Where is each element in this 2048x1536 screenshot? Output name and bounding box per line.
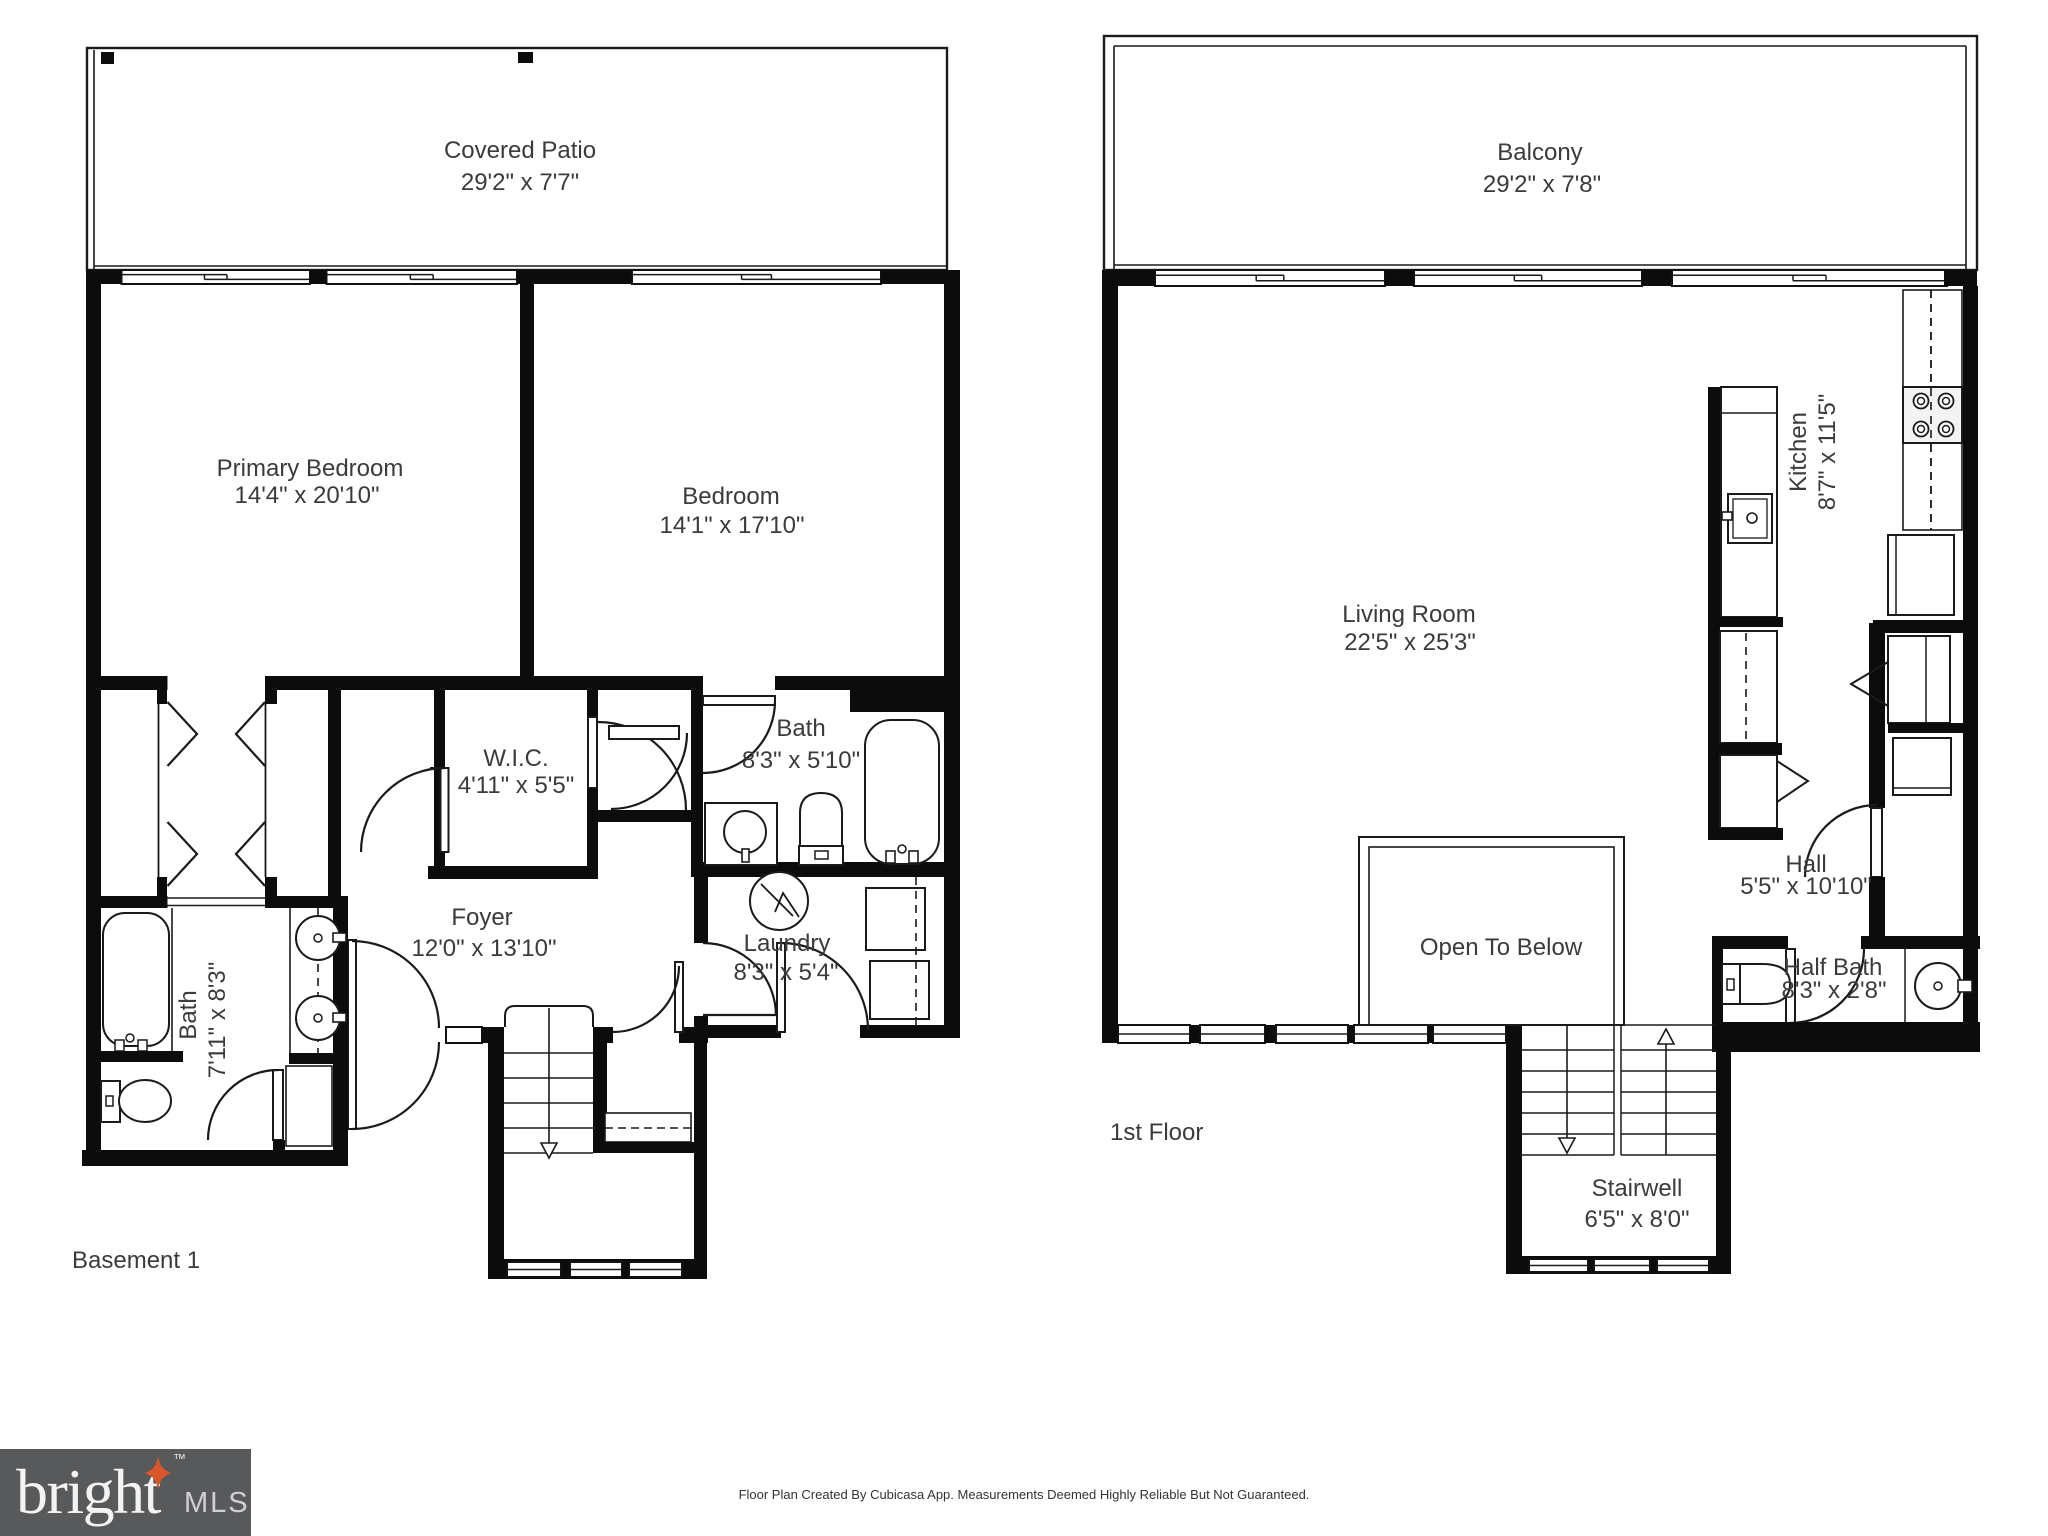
svg-text:7'11" x 8'3": 7'11" x 8'3" xyxy=(204,962,231,1079)
svg-text:™: ™ xyxy=(173,1451,186,1466)
svg-text:Bath: Bath xyxy=(175,990,202,1039)
svg-text:1st Floor: 1st Floor xyxy=(1110,1119,1203,1146)
svg-text:MLS: MLS xyxy=(184,1487,250,1519)
svg-text:12'0" x 13'10": 12'0" x 13'10" xyxy=(412,935,557,962)
svg-text:Open To Below: Open To Below xyxy=(1420,934,1583,961)
svg-text:Bedroom: Bedroom xyxy=(682,483,779,510)
svg-text:Balcony: Balcony xyxy=(1497,139,1582,166)
svg-text:14'1" x 17'10": 14'1" x 17'10" xyxy=(660,512,805,539)
svg-text:Covered Patio: Covered Patio xyxy=(444,137,596,164)
svg-text:Foyer: Foyer xyxy=(451,904,512,931)
svg-text:22'5" x 25'3": 22'5" x 25'3" xyxy=(1344,629,1476,656)
svg-text:6'5" x 8'0": 6'5" x 8'0" xyxy=(1585,1206,1690,1233)
svg-text:Stairwell: Stairwell xyxy=(1592,1175,1683,1202)
svg-text:Floor Plan Created By Cubicasa: Floor Plan Created By Cubicasa App. Meas… xyxy=(739,1487,1310,1502)
svg-text:Laundry: Laundry xyxy=(744,930,831,957)
svg-text:8'3" x 2'8": 8'3" x 2'8" xyxy=(1782,977,1887,1004)
svg-text:4'11" x 5'5": 4'11" x 5'5" xyxy=(458,772,575,799)
svg-text:29'2" x 7'7": 29'2" x 7'7" xyxy=(461,169,579,196)
svg-text:Basement 1: Basement 1 xyxy=(72,1247,200,1274)
svg-text:W.I.C.: W.I.C. xyxy=(483,745,548,772)
svg-text:14'4" x 20'10": 14'4" x 20'10" xyxy=(235,482,380,509)
svg-text:8'7" x 11'5": 8'7" x 11'5" xyxy=(1814,394,1841,511)
svg-text:Bath: Bath xyxy=(776,715,825,742)
svg-text:8'3" x 5'4": 8'3" x 5'4" xyxy=(734,959,839,986)
svg-text:29'2" x 7'8": 29'2" x 7'8" xyxy=(1483,171,1601,198)
svg-text:8'3" x 5'10": 8'3" x 5'10" xyxy=(742,747,860,774)
svg-text:bright: bright xyxy=(16,1456,162,1527)
svg-text:Living Room: Living Room xyxy=(1342,601,1475,628)
svg-text:Primary Bedroom: Primary Bedroom xyxy=(217,455,404,482)
svg-text:5'5" x 10'10": 5'5" x 10'10" xyxy=(1740,873,1872,900)
svg-text:Kitchen: Kitchen xyxy=(1785,412,1812,492)
